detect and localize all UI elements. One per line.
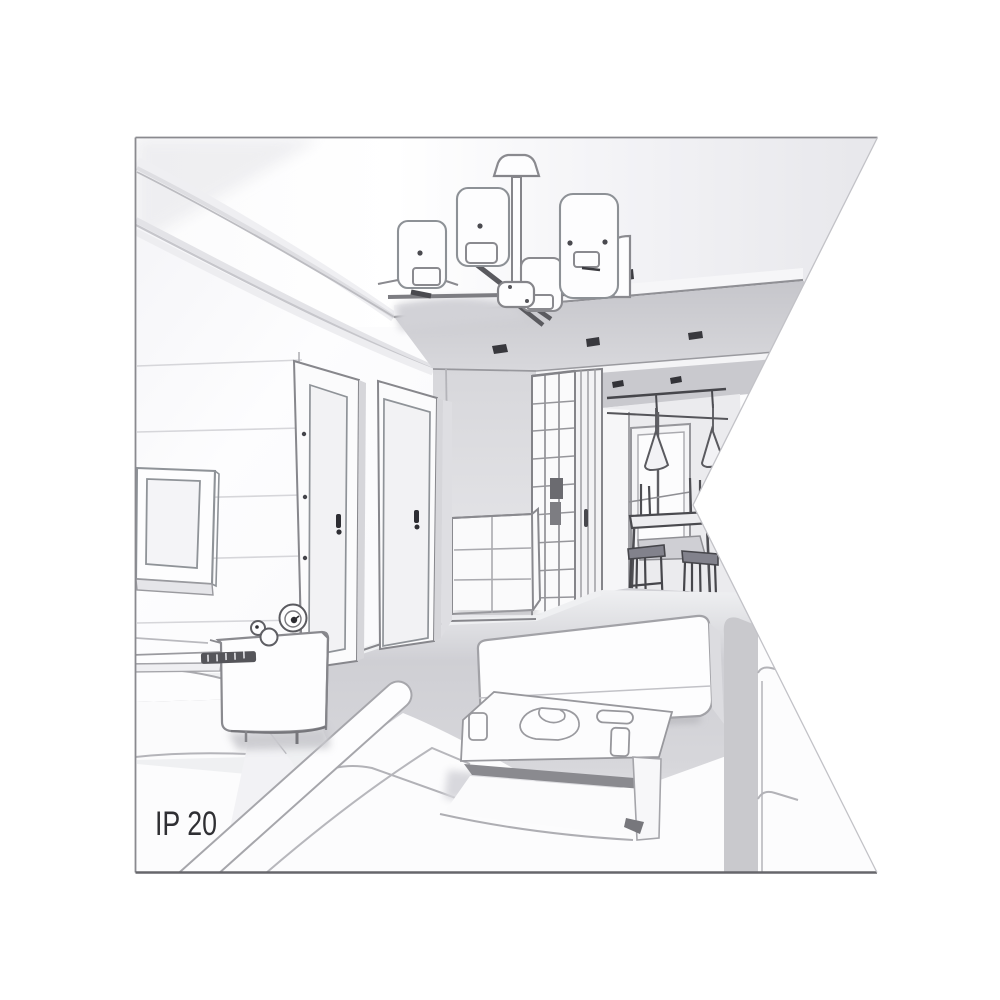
svg-text:IP 20: IP 20 — [155, 805, 217, 843]
